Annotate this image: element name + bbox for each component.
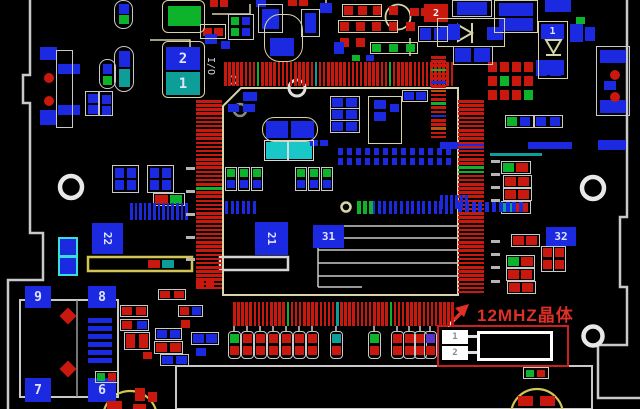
qfp-pin — [458, 233, 484, 236]
qfp-pin — [458, 146, 484, 149]
bus-trace-bar — [431, 102, 446, 105]
signal-trace — [417, 201, 420, 214]
qfp-pin — [426, 62, 429, 86]
qfp-pin — [458, 216, 484, 219]
smd-pad — [256, 334, 265, 343]
component-outline — [99, 91, 113, 116]
bus-trace-bar — [431, 73, 446, 76]
component-outline — [155, 328, 182, 340]
component-outline — [330, 120, 360, 133]
qfp-pin — [348, 62, 351, 86]
qfp-pin — [298, 62, 301, 86]
smd-pad — [524, 90, 533, 100]
component-outline — [228, 14, 254, 40]
qfp-pin — [262, 302, 265, 326]
qfp-pin — [458, 150, 484, 153]
pin-stub — [408, 326, 410, 331]
signal-trace — [392, 158, 397, 165]
qfp-pin — [458, 266, 484, 269]
qfp-pin — [196, 171, 222, 174]
smd-pad — [366, 55, 374, 61]
bar-outline-yellow — [88, 257, 192, 271]
signal-trace — [428, 158, 433, 165]
pin-stub — [272, 326, 274, 331]
qfp-pin — [196, 133, 222, 136]
qfp-pin — [389, 62, 392, 86]
mounting-hole — [584, 327, 603, 346]
signal-trace — [465, 202, 469, 212]
smd-pad — [370, 334, 379, 343]
qfp-pin — [258, 302, 261, 326]
qfp-pin — [357, 302, 360, 326]
silkscreen-tick — [491, 173, 500, 176]
component-outline — [114, 46, 134, 92]
signal-trace — [437, 148, 442, 155]
qfp-pin — [237, 302, 240, 326]
qfp-pin — [369, 302, 372, 326]
component-outline — [85, 91, 99, 116]
smd-pad — [288, 0, 297, 6]
qfp-pin — [196, 137, 222, 140]
qfp-pin — [287, 302, 290, 326]
qfp-pin — [458, 142, 484, 145]
silkscreen-tick — [491, 240, 500, 243]
signal-trace — [446, 158, 451, 165]
component-outline — [287, 140, 314, 161]
pin-stub — [419, 326, 421, 331]
qfp-pin — [458, 154, 484, 157]
qfp-pin — [390, 302, 393, 326]
smd-pad — [135, 388, 145, 401]
qfp-pin — [311, 62, 314, 86]
qfp-pin — [278, 302, 281, 326]
qfp-pin — [458, 162, 484, 165]
component-outline — [124, 332, 150, 350]
smd-pad — [299, 0, 308, 6]
qfp-pin — [236, 62, 239, 86]
signal-trace — [253, 201, 256, 214]
qfp-pin — [393, 62, 396, 86]
smd-pad — [269, 334, 278, 343]
signal-trace — [225, 201, 228, 214]
qfp-pin — [224, 62, 227, 86]
signal-trace — [428, 148, 433, 155]
qfp-pin — [294, 62, 297, 86]
via-hole — [342, 203, 351, 212]
qfp-pin — [270, 302, 273, 326]
qfp-pin — [458, 249, 484, 252]
qfp-pin — [196, 278, 222, 281]
qfp-pin — [196, 258, 222, 261]
qfp-pin — [372, 62, 375, 86]
smd-pad — [40, 110, 57, 125]
qfp-pin — [196, 204, 222, 207]
pin-stub — [259, 326, 261, 331]
smd-pad — [405, 346, 414, 355]
bus-trace-bar — [431, 64, 446, 67]
signal-trace — [148, 203, 151, 220]
qfp-pin — [265, 62, 268, 86]
smd-pad — [256, 346, 265, 355]
qfp-pin — [381, 62, 384, 86]
signal-trace — [437, 158, 442, 165]
bus-trace-bar — [431, 56, 446, 59]
silkscreen-io-label: I/O — [205, 57, 216, 75]
smd-pad — [332, 346, 341, 355]
qfp-pin — [422, 62, 425, 86]
qfp-pin — [311, 302, 314, 326]
qfp-pin — [196, 220, 222, 223]
bus-trace-bar — [431, 111, 446, 114]
qfp-pin — [458, 274, 484, 277]
qfp-pin — [418, 62, 421, 86]
component-outline — [534, 115, 563, 128]
component-outline — [452, 0, 492, 17]
qfp-pin — [196, 150, 222, 153]
smd-pad — [332, 334, 341, 343]
smd-pad — [88, 318, 112, 323]
qfp-pin — [196, 191, 222, 194]
qfp-pin — [307, 302, 310, 326]
component-outline — [507, 281, 536, 294]
qfp-pin — [196, 108, 222, 111]
qfp-pin — [249, 62, 252, 86]
signal-trace — [369, 201, 373, 214]
qfp-pin — [324, 302, 327, 326]
smd-pad — [488, 90, 497, 100]
qfp-pin — [458, 212, 484, 215]
component-outline — [158, 289, 186, 300]
smd-pad — [133, 404, 146, 409]
pin-stub — [285, 326, 287, 331]
signal-trace — [357, 201, 361, 214]
qfp-pin — [299, 302, 302, 326]
qfp-pin — [361, 302, 364, 326]
smd-pad — [44, 73, 54, 83]
annotation-text: 12MHZ晶体 — [477, 301, 574, 326]
qfp-pin — [319, 62, 322, 86]
qfp-pin — [196, 216, 222, 219]
signal-trace — [422, 201, 425, 214]
qfp-pin — [240, 62, 243, 86]
qfp-pin — [410, 302, 413, 326]
qfp-pin — [340, 302, 343, 326]
smd-pad — [282, 334, 291, 343]
smd-pad — [426, 346, 435, 355]
component-outline — [503, 175, 532, 188]
component-outline — [162, 41, 205, 98]
signal-trace — [411, 201, 414, 214]
silkscreen-tick — [491, 186, 500, 189]
smd-pad — [210, 0, 218, 7]
qfp-pin — [196, 162, 222, 165]
signal-trace — [446, 148, 451, 155]
signal-trace — [236, 201, 239, 214]
signal-trace — [171, 203, 174, 220]
qfp-pin — [196, 183, 222, 186]
qfp-pin — [196, 212, 222, 215]
pin-stub — [298, 326, 300, 331]
signal-trace — [363, 201, 367, 214]
qfp-pin — [381, 302, 384, 326]
usb-pad-8: 8 — [88, 286, 116, 308]
signal-trace — [419, 158, 424, 165]
qfp-pin — [274, 302, 277, 326]
silkscreen-tick — [491, 266, 500, 269]
smd-pad — [320, 3, 332, 13]
signal-trace — [410, 158, 415, 165]
qfp-pin — [196, 249, 222, 252]
qfp-pin — [196, 154, 222, 157]
smd-pad — [524, 76, 533, 86]
signal-trace — [130, 203, 133, 220]
pin-stub — [335, 326, 337, 331]
smd-pad — [323, 180, 331, 188]
component-outline — [154, 341, 183, 354]
component-outline — [338, 20, 398, 33]
qfp-pin — [451, 302, 454, 326]
signal-trace — [374, 158, 379, 165]
smd-pad — [389, 6, 398, 15]
testpoint-22: 22 — [92, 223, 123, 254]
smd-pad — [88, 350, 112, 355]
bus-trace-bar — [431, 77, 446, 80]
smd-pad — [88, 334, 112, 339]
qfp-pin — [232, 62, 235, 86]
qfp-pin — [458, 183, 484, 186]
qfp-pin — [245, 302, 248, 326]
smd-pad — [406, 22, 415, 31]
smd-pad — [295, 334, 304, 343]
qfp-pin — [335, 62, 338, 86]
smd-pad — [243, 334, 252, 343]
smd-pad — [488, 76, 497, 86]
component-outline — [262, 117, 318, 142]
qfp-pin — [196, 200, 222, 203]
smd-pad — [323, 169, 331, 177]
signal-trace — [383, 201, 386, 214]
signal-trace — [445, 195, 448, 209]
silkscreen-tick — [491, 199, 500, 202]
qfp-pin — [458, 270, 484, 273]
smd-pad — [393, 346, 402, 355]
silkscreen-tick — [491, 253, 500, 256]
signal-trace — [144, 203, 147, 220]
bus-trace-bar — [431, 123, 446, 126]
smd-pad — [148, 392, 157, 402]
qfp-pin — [435, 302, 438, 326]
qfp-pin — [336, 302, 339, 326]
qfp-pin — [196, 129, 222, 132]
smd-pad — [243, 104, 255, 112]
smd-pad — [243, 346, 252, 355]
qfp-pin — [196, 146, 222, 149]
qfp-pin — [266, 302, 269, 326]
bus-trace-bar — [431, 115, 446, 118]
qfp-pin — [339, 62, 342, 86]
signal-trace — [506, 202, 510, 212]
qfp-pin — [320, 302, 323, 326]
qfp-pin — [409, 62, 412, 86]
signal-trace — [135, 203, 138, 220]
qfp-pin — [356, 62, 359, 86]
qfp-pin — [323, 62, 326, 86]
qfp-pin — [245, 62, 248, 86]
qfp-pin — [196, 254, 222, 257]
silkscreen-tick — [186, 258, 195, 261]
signal-trace — [365, 148, 370, 155]
smd-pad — [107, 401, 122, 409]
qfp-pin — [427, 302, 430, 326]
bus-trace-bar — [431, 85, 446, 88]
smd-pad — [297, 180, 305, 188]
signal-trace — [478, 202, 482, 212]
smd-pad — [253, 180, 261, 188]
smd-pad — [352, 55, 360, 61]
qfp-pin — [327, 62, 330, 86]
qfp-pin — [254, 302, 257, 326]
qfp-pin — [332, 302, 335, 326]
smd-pad — [240, 169, 248, 177]
signal-trace — [167, 203, 170, 220]
qfp-pin — [196, 233, 222, 236]
qfp-pin — [196, 100, 222, 103]
qfp-pin — [458, 191, 484, 194]
smd-pad — [295, 346, 304, 355]
qfp-pin — [273, 62, 276, 86]
qfp-pin — [364, 62, 367, 86]
smd-pad — [310, 180, 318, 188]
signal-trace — [338, 148, 343, 155]
smd-pad — [570, 24, 583, 42]
qfp-pin — [196, 245, 222, 248]
qfp-pin — [196, 142, 222, 145]
qfp-pin — [196, 195, 222, 198]
component-outline — [538, 21, 568, 79]
component-outline — [200, 24, 226, 39]
signal-trace — [181, 203, 184, 220]
smd-pad — [410, 8, 419, 16]
crystal-pad-1: 1 — [442, 330, 468, 344]
qfp-pin — [360, 62, 363, 86]
qfp-pin — [458, 278, 484, 281]
qfp-pin — [458, 187, 484, 190]
qfp-pin — [196, 125, 222, 128]
smd-pad — [88, 342, 112, 347]
qfp-pin — [385, 62, 388, 86]
qfp-pin — [458, 287, 484, 290]
qfp-pin — [458, 133, 484, 136]
qfp-pin — [458, 237, 484, 240]
smd-pad — [230, 334, 239, 343]
qfp-pin — [373, 302, 376, 326]
signal-trace — [158, 203, 161, 220]
crystal-body-outline — [477, 331, 553, 361]
silkscreen-tick — [491, 160, 500, 163]
crystal-stub — [468, 335, 477, 338]
qfp-pin — [397, 62, 400, 86]
component-outline — [503, 188, 532, 201]
qfp-pin — [249, 302, 252, 326]
signal-trace — [406, 201, 409, 214]
qfp-pin — [458, 100, 484, 103]
signal-trace — [231, 201, 234, 214]
qfp-pin — [423, 302, 426, 326]
qfp-pin — [278, 62, 281, 86]
signal-trace — [434, 201, 437, 214]
qfp-pin — [228, 62, 231, 86]
qfp-pin — [306, 62, 309, 86]
qfp-pin — [458, 104, 484, 107]
bar-outline-white — [220, 257, 288, 270]
component-outline — [523, 367, 549, 379]
signal-trace — [338, 158, 343, 165]
smd-pad — [243, 92, 257, 101]
qfp-pin — [418, 302, 421, 326]
smd-pad — [282, 346, 291, 355]
qfp-pin — [196, 229, 222, 232]
qfp-pin — [233, 302, 236, 326]
signal-trace — [176, 203, 179, 220]
qfp-pin — [431, 302, 434, 326]
qfp-pin — [302, 62, 305, 86]
smd-pad — [490, 153, 542, 156]
qfp-pin — [458, 245, 484, 248]
pin-stub — [373, 326, 375, 331]
qfp-pin — [352, 302, 355, 326]
testpoint-32: 32 — [546, 227, 576, 246]
bus-trace-bar — [431, 127, 446, 130]
bus-trace-bar — [431, 94, 446, 97]
smd-pad — [308, 346, 317, 355]
smd-pad — [240, 180, 248, 188]
qfp-pin — [196, 225, 222, 228]
qfp-pin — [196, 121, 222, 124]
bus-trace-bar — [431, 132, 446, 135]
board-edge-left — [8, 0, 43, 409]
qfp-pin — [368, 62, 371, 86]
signal-trace — [492, 202, 496, 212]
signal-trace — [139, 203, 142, 220]
qfp-pin — [458, 158, 484, 161]
signal-trace — [400, 201, 403, 214]
qfp-pin — [196, 287, 222, 290]
bus-trace-bar — [431, 98, 446, 101]
smd-pad — [58, 237, 78, 257]
component-outline — [114, 0, 133, 29]
signal-trace — [356, 148, 361, 155]
silkscreen-tick — [186, 167, 195, 170]
mounting-hole — [582, 177, 604, 199]
smd-pad — [253, 169, 261, 177]
qfp-pin — [295, 302, 298, 326]
qfp-pin — [443, 302, 446, 326]
signal-trace — [383, 148, 388, 155]
qfp-pin — [196, 175, 222, 178]
component-outline — [160, 354, 189, 366]
component-outline — [505, 115, 534, 128]
smd-pad — [221, 41, 230, 49]
signal-trace — [440, 195, 443, 209]
signal-trace — [394, 201, 397, 214]
smd-pad — [524, 62, 533, 72]
qfp-pin — [348, 302, 351, 326]
qfp-pin — [458, 179, 484, 182]
smd-pad — [370, 346, 379, 355]
signal-trace — [378, 201, 381, 214]
signal-trace — [392, 148, 397, 155]
qfp-pin — [343, 62, 346, 86]
